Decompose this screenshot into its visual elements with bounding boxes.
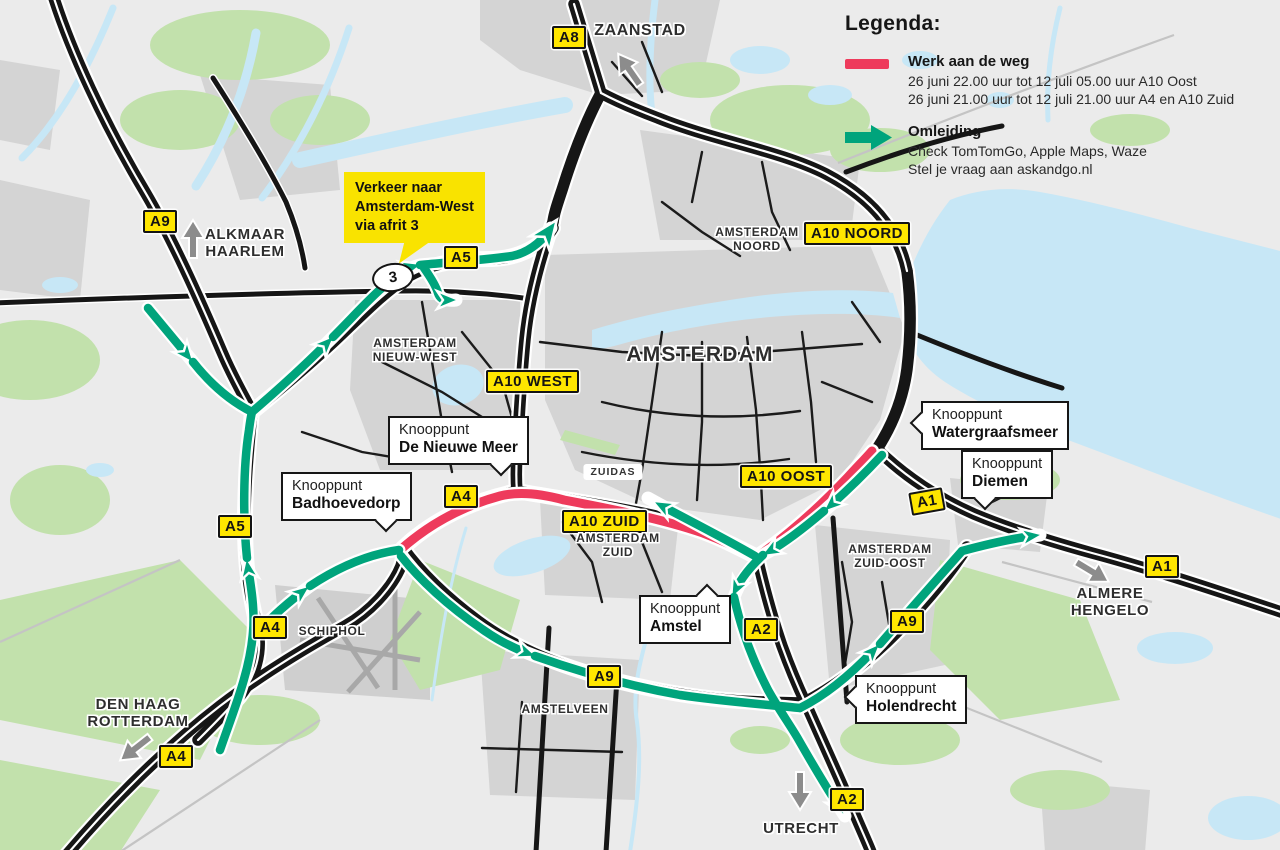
road-badge-a9-gaasperdammer: A9 — [890, 610, 924, 633]
legend-roadwork-line2: 26 juni 21.00 uur tot 12 juli 21.00 uur … — [908, 91, 1234, 107]
legend-detour-line2: Stel je vraag aan askandgo.nl — [908, 161, 1092, 177]
road-badge-a4-zuidwest: A4 — [159, 745, 193, 768]
roadwork-line-icon — [845, 59, 889, 69]
road-badge-a10-oost: A10 OOST — [740, 465, 832, 488]
place-label-almere-hengelo: ALMERE HENGELO — [1071, 585, 1149, 620]
road-badge-a1-oost: A1 — [1145, 555, 1179, 578]
place-label-alkmaar-haarlem: ALKMAAR HAARLEM — [205, 226, 285, 261]
detour-callout: Verkeer naar Amsterdam-West via afrit 3 — [344, 172, 485, 243]
legend-title: Legenda: — [845, 12, 1275, 36]
place-label-amsterdam: AMSTERDAM — [626, 343, 773, 367]
legend-roadwork-line1: 26 juni 22.00 uur tot 12 juli 05.00 uur … — [908, 73, 1197, 89]
detour-map: A8 A9 A5 A10 NOORD A10 WEST A10 OOST A10… — [0, 0, 1280, 850]
legend-detour-line1: Check TomTomGo, Apple Maps, Waze — [908, 143, 1147, 159]
road-badge-a9-nw: A9 — [143, 210, 177, 233]
place-label-zuid-oost: AMSTERDAM ZUID-OOST — [848, 543, 931, 571]
place-label-amsterdam-noord: AMSTERDAM NOORD — [715, 226, 798, 254]
junction-callout-watergraafsmeer: Knooppunt Watergraafsmeer — [921, 401, 1069, 450]
place-label-zaanstad: ZAANSTAD — [594, 22, 686, 40]
place-label-amsterdam-zuid: AMSTERDAM ZUID — [576, 532, 659, 560]
road-badge-a4-schiphol: A4 — [253, 616, 287, 639]
place-label-amstelveen: AMSTELVEEN — [521, 703, 608, 717]
junction-callout-badhoevedorp: Knooppunt Badhoevedorp — [281, 472, 412, 521]
road-badge-a5-afrit: A5 — [444, 246, 478, 269]
arrow-utrecht — [789, 772, 811, 810]
road-badge-a10-zuid: A10 ZUID — [562, 510, 647, 533]
place-label-den-haag-rotterdam: DEN HAAG ROTTERDAM — [87, 696, 188, 731]
road-badge-a2-utrecht: A2 — [830, 788, 864, 811]
place-label-schiphol: SCHIPHOL — [299, 625, 366, 639]
road-badge-a5-west: A5 — [218, 515, 252, 538]
place-label-utrecht: UTRECHT — [763, 820, 839, 837]
place-label-nieuw-west: AMSTERDAM NIEUW-WEST — [373, 337, 457, 365]
junction-callout-amstel: Knooppunt Amstel — [639, 595, 731, 644]
place-label-zuidas: ZUIDAS — [583, 464, 642, 480]
junction-callout-de-nieuwe-meer: Knooppunt De Nieuwe Meer — [388, 416, 529, 465]
legend-roadwork-label: Werk aan de weg — [908, 52, 1234, 72]
legend-detour-label: Omleiding — [908, 122, 1147, 142]
junction-callout-diemen: Knooppunt Diemen — [961, 450, 1053, 499]
road-badge-a9-amstelveen: A9 — [587, 665, 621, 688]
legend-roadwork-row: Werk aan de weg 26 juni 22.00 uur tot 12… — [845, 52, 1275, 109]
road-badge-a4-nieuwemeer: A4 — [444, 485, 478, 508]
legend-detour-row: Omleiding Check TomTomGo, Apple Maps, Wa… — [845, 122, 1275, 179]
road-badge-a10-noord: A10 NOORD — [804, 222, 910, 245]
junction-callout-holendrecht: Knooppunt Holendrecht — [855, 675, 967, 724]
detour-arrow-icon — [845, 124, 893, 151]
road-badge-a10-west: A10 WEST — [486, 370, 579, 393]
road-badge-a2-amstel: A2 — [744, 618, 778, 641]
road-badge-a8: A8 — [552, 26, 586, 49]
legend: Legenda: Werk aan de weg 26 juni 22.00 u… — [845, 12, 1275, 191]
